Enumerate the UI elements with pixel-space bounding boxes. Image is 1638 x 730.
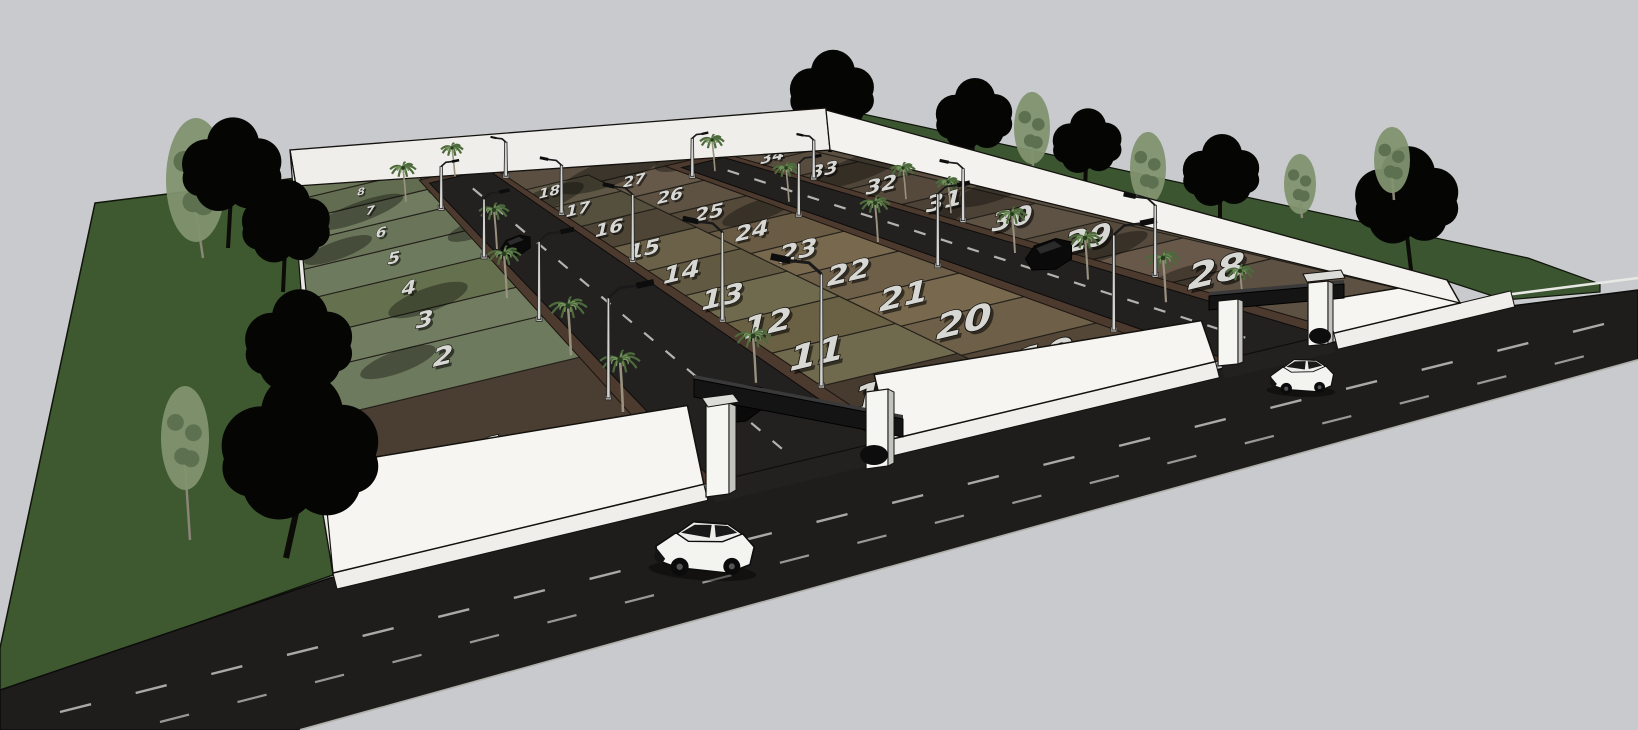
tree-canopy-shade [1288,169,1299,180]
tree-canopy [1183,167,1211,195]
tree-canopy [1374,127,1410,193]
tree-canopy [1284,154,1316,214]
palm-crown [750,333,755,338]
palm-crown [1238,269,1242,273]
tree-canopy-shade [1146,176,1159,189]
tree-canopy [1356,191,1394,229]
tree-canopy-shade [1392,150,1405,163]
lamp-pole [631,195,634,261]
palm-crown [401,166,405,170]
lamp-pole [504,142,507,176]
tree-canopy [242,217,274,249]
lamp-pole [560,165,563,213]
lamp-pole [691,138,694,176]
tree-canopy-shade [1030,136,1043,149]
tree-canopy-shade [1390,167,1403,180]
gate-pillar-side [729,403,736,494]
tree-canopy [183,160,219,196]
lamp-pole [440,167,443,209]
tree-canopy-shade [1148,158,1161,171]
tree-canopy [1233,167,1259,193]
tree-canopy-shade [183,450,200,467]
tree-canopy-shade [1135,151,1148,164]
palm-crown [1010,212,1014,216]
lamp-pole [961,169,964,221]
lamp-pole [797,163,800,215]
tree-canopy-shade [185,424,202,441]
tree-canopy [986,111,1012,137]
tree-canopy [936,111,964,139]
palm-crown [502,252,507,257]
tree-canopy [246,335,285,374]
palm-crown [492,208,496,212]
tree-canopy [299,217,329,247]
lamp-pole [721,232,724,320]
tree-canopy-shade [1379,144,1392,157]
lamp-pole [812,140,815,178]
tree-canopy [845,86,874,115]
tree-canopy [1130,132,1166,204]
gate-pillar-side [888,389,894,466]
site-render-canvas: 1122334455667788991010111112121313141415… [0,0,1638,730]
gate-pillar [1218,299,1238,366]
palm-crown [1083,236,1087,240]
tree-canopy-shade [1032,118,1045,131]
palm-crown [617,357,623,363]
lamp-pole [1154,205,1157,275]
lamp-pole [1112,235,1115,330]
tree-canopy-shade [1019,111,1032,124]
palm-crown [784,166,788,170]
gate-shrub [860,445,888,465]
palm-crown [710,138,713,141]
tree-canopy [315,335,352,372]
tree-canopy [161,386,209,490]
palm-crown [946,180,949,183]
tree-canopy [1053,138,1078,163]
gate-pillar-side [1238,299,1243,364]
lamp-pole [607,298,610,398]
lamp-pole [820,274,823,386]
gate-shrub [1309,328,1331,344]
palm-crown [450,146,453,149]
gate-pillar [706,403,729,497]
tree-canopy [324,439,378,493]
roof-rail [1295,360,1315,361]
tree-canopy [1014,92,1050,164]
palm-crown [565,303,570,308]
tree-canopy [222,439,279,496]
palm-crown [873,201,877,205]
tree-canopy-shade [1300,175,1311,186]
lamp-pole [482,199,485,257]
lamp-pole [936,194,939,266]
palm-crown [1161,256,1166,261]
tree-canopy [1098,138,1122,162]
tree-canopy-shade [167,414,184,431]
rendered-scene: 1122334455667788991010111112121313141415… [0,0,1638,730]
tree-canopy-shade [1298,190,1309,201]
tree-canopy [1423,191,1459,227]
lamp-pole [537,241,540,319]
palm-crown [901,166,904,169]
